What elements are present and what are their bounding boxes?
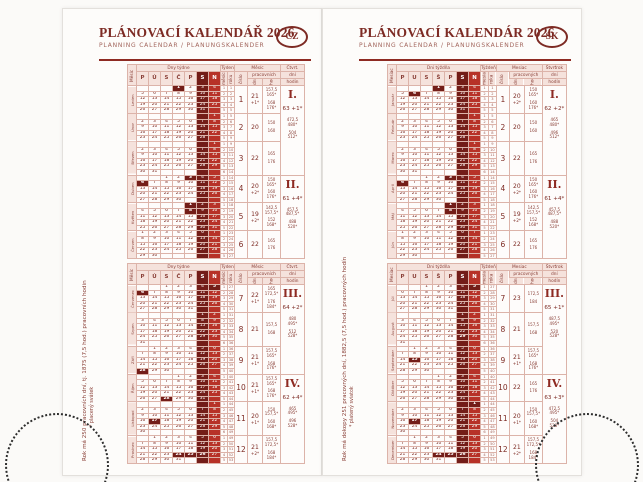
working-days-value: 21 [248,93,262,100]
paid-holidays-value: +2* [510,218,524,223]
diary-spread: PLÁNOVACÍ KALENDÁŘ 2026 PLANNING CALENDA… [0,0,643,482]
page-subtitle: PLANNING CALENDAR / PLANUNGSKALENDER [99,42,265,49]
quarter-days-subheader: dní [281,271,305,278]
working-days-value: 21 [248,444,262,451]
day-cell [433,253,445,259]
day-cell: 30 [149,253,161,259]
month-name: Január [388,86,397,114]
month-name: Prosinec [128,436,137,464]
day-letter: N [209,72,221,86]
working-days-value: 22 [510,155,524,162]
month-col-header: Měsíc [128,65,137,86]
hours-subheader: hodín [524,79,542,86]
working-days-cell: 21+1* [248,374,263,402]
month-name: Leden [128,86,137,114]
working-hours-cell: 142,5157,5*152168* [263,203,281,231]
month-stats-header: Měsíc [235,65,281,72]
month-name: September [388,346,397,374]
working-days-cell: 19+2* [248,203,263,231]
calendar-table: MesiacDni týždňaTýždeňMesiacŠtvrťrokPUSŠ… [387,263,567,464]
working-hours-value: 184 [525,300,542,305]
working-days-cell: 20+1* [509,402,524,436]
working-days-value: 20 [248,413,262,420]
week-of-year: 27 [228,253,235,259]
month-number: 9 [496,346,509,374]
month-stats-header: Mesiac [496,264,542,271]
working-days-cell: 21+1* [248,346,263,374]
month-number: 3 [496,141,509,175]
day-cell: 29 [397,253,409,259]
quarter-hours-value: 528* [281,424,304,429]
working-days-value: 21 [510,444,524,451]
month-col-header: Mesiac [388,264,397,285]
month-name: Květen [128,203,137,231]
working-hours-cell: 150165*160176* [524,86,542,114]
month-number: 5 [496,203,509,231]
day-cell: 29 [409,458,421,464]
working-hours-value: 184* [263,305,280,310]
day-letter: S [421,271,433,285]
working-days-value: 19 [510,211,524,218]
working-hours-value: 168 [525,331,542,336]
working-hours-cell: 150165*160176* [263,175,281,203]
working-hours-cell: 165176 [524,141,542,175]
page-sk: PLÁNOVACÍ KALENDÁR 2026 PLANNING CALENDA… [322,8,582,476]
days-of-week-header: Dni týždňa [397,65,481,72]
quarter-label: I. [543,89,566,101]
working-hours-value: 176* [263,394,280,399]
month-name: Júl [388,285,397,313]
working-days-cell: 20+2* [509,86,524,114]
month-number: 11 [496,402,509,436]
working-days-cell: 21+2* [509,436,524,464]
month-number: 10 [235,374,248,402]
month-number: 1 [235,86,248,114]
day-letter: P [185,271,197,285]
month-number: 4 [235,175,248,203]
calendar-table-jul-dec: MěsícDny týdneTýdenMěsícČtvrt.PÚSČPSNměs… [127,263,305,464]
quarter-label: II. [281,179,304,191]
month-name: August [388,312,397,346]
quarter-hours-value: 520* [281,225,304,230]
working-header: pracovných [509,72,542,79]
day-cell [197,253,209,259]
month-name: November [388,402,397,436]
calendar-table-jan-jun: MesiacDni týždňaTýždeňMesiacŠtvrťrokPUSŠ… [387,64,567,259]
day-letter: P [397,72,409,86]
month-number: 7 [496,285,509,313]
month-number: 9 [235,346,248,374]
day-letter: P [137,271,149,285]
paid-holidays-value: +1* [248,299,262,304]
day-cell: 30 [161,458,173,464]
day-letter: Ú [149,72,161,86]
working-days-cell: 21+1* [509,346,524,374]
day-cell: 31 [173,458,185,464]
working-days-cell: 22 [509,141,524,175]
working-hours-value: 168* [263,223,280,228]
days-of-week-header: Dni týždňa [397,264,481,271]
working-hours-cell: 165176 [263,141,281,175]
working-hours-value: 176* [263,195,280,200]
working-hours-cell: 157,5172,5*168184* [263,436,281,464]
quarter-label: III. [281,288,304,300]
country-badge-cz: CZ [276,26,308,48]
working-hours-value: 168 [263,331,280,336]
day-letter: U [409,72,421,86]
month-name: Srpen [128,312,137,346]
month-name: Říjen [128,374,137,402]
quarter-days-subheader: dní [281,72,305,79]
header-rule [99,59,311,61]
week-header: Týždeň [481,264,497,271]
month-number: 1 [496,86,509,114]
day-letter: S [457,72,469,86]
month-number: 10 [496,374,509,402]
month-name: Október [388,374,397,402]
quarter-days-subheader: dní [542,72,566,79]
working-hours-value: 176 [525,389,542,394]
day-letter: Č [173,72,185,86]
day-cell: 30 [421,458,433,464]
month-name: Únor [128,113,137,141]
working-days-value: 21 [510,326,524,333]
day-letter: P [397,271,409,285]
month-number: 11 [235,402,248,436]
day-letter: S [161,72,173,86]
day-cell [173,253,185,259]
day-cell [209,458,221,464]
day-letter: Š [433,271,445,285]
working-hours-cell: 165176 [524,231,542,259]
working-header: pracovních [248,271,281,278]
working-days-value: 23 [510,295,524,302]
month-number: 6 [235,231,248,259]
quarter-cell: I.62 +2*465480*496512* [542,86,566,176]
week-of-month: 5 [221,458,228,464]
working-days-cell: 20 [509,113,524,141]
quarter-days-subheader: dní [542,271,566,278]
working-hours-value: 176 [525,246,542,251]
working-hours-cell: 150160 [524,113,542,141]
quarter-label: IV. [543,378,566,390]
day-letter: Ú [149,271,161,285]
working-hours-value: 176* [525,106,542,111]
month-name: Marec [388,141,397,175]
month-number: 8 [496,312,509,346]
working-days-cell: 20 [248,113,263,141]
calendar-table: MesiacDni týždňaTýždeňMesiacŠtvrťrokPUSŠ… [387,64,567,259]
day-cell: 31 [433,458,445,464]
quarter-cell: III.64 +2*480495*512528* [281,285,305,375]
week-of-month-header: měsíce [221,271,228,285]
calendar-table: MěsícDny týdneTýdenMěsícČtvrt.PÚSČPSNměs… [127,263,305,464]
working-days-value: 21 [248,354,262,361]
month-number: 2 [235,113,248,141]
working-header: pracovných [509,271,542,278]
country-badge-sk: SK [536,26,568,48]
quarter-label: I. [281,89,304,101]
quarter-hours-value: 512* [281,135,304,140]
day-cell [197,458,209,464]
month-name: December [388,436,397,464]
paid-holiday-footnote: * platený sviatok [349,261,357,461]
working-hours-value: 168* [525,223,542,228]
working-hours-value: 176* [263,106,280,111]
working-days-value: 20 [248,124,262,131]
month-name: Máj [388,203,397,231]
week-of-month-header: měsíce [221,72,228,86]
day-cell [457,253,469,259]
month-name: Červen [128,231,137,259]
page-cz: PLÁNOVACÍ KALENDÁŘ 2026 PLANNING CALENDA… [62,8,322,476]
week-of-month: 5 [481,253,489,259]
quarter-hours-value: 520* [543,225,566,230]
working-hours-value: 157,5* [525,412,542,417]
day-cell [421,253,433,259]
day-cell: 29 [137,253,149,259]
working-days-cell: 21+1* [248,86,263,114]
month-name: Červenec [128,285,137,313]
working-hours-cell: 165172,5*176184* [263,285,281,313]
day-cell: 28 [397,458,409,464]
days-subheader: dní [509,278,524,285]
working-days-value: 21 [248,382,262,389]
quarter-days-value: 62 +4* [281,395,304,401]
working-hours-cell: 157,5168 [263,312,281,346]
days-subheader: dní [248,278,263,285]
quarter-days-value: 62 +2* [543,106,566,112]
quarter-days-value: 61 +4* [543,196,566,202]
month-name: Listopad [128,402,137,436]
week-of-month: 5 [221,253,228,259]
week-of-year: 27 [488,253,496,259]
working-hours-value: 168* [525,425,542,430]
quarter-cell: I.63 +1*472,5480*504512* [281,86,305,176]
month-name: Duben [128,175,137,203]
working-hours-value: 157,5* [263,412,280,417]
paid-holidays-value: +1* [248,389,262,394]
quarter-label: III. [543,288,566,300]
month-name: Február [388,113,397,141]
paid-holidays-value: +1* [248,100,262,105]
working-hours-value: 184* [263,456,280,461]
quarter-hours-value: 512* [543,135,566,140]
working-hours-value: 176* [263,366,280,371]
day-cell [185,458,197,464]
month-number: 5 [235,203,248,231]
day-letter: S [457,271,469,285]
month-number: 3 [235,141,248,175]
quarter-hours-subheader: hodin [281,79,305,86]
quarter-days-value: 61 +4* [281,196,304,202]
day-letter: S [421,72,433,86]
working-days-cell: 20+1* [248,402,263,436]
working-hours-value: 157,5* [525,211,542,216]
page-title: PLÁNOVACÍ KALENDÁR 2026 [359,25,555,41]
week-header: Týden [221,65,235,72]
calendar-table-jul-dec: MesiacDni týždňaTýždeňMesiacŠtvrťrokPUSŠ… [387,263,567,464]
working-days-value: 20 [510,413,524,420]
working-hours-value: 157,5* [263,211,280,216]
day-letter: P [185,72,197,86]
page-subtitle: PLANNING CALENDAR / PLANUNGSKALENDER [359,42,525,49]
week-header: Týden [221,264,235,271]
working-hours-cell: 172,5184 [524,285,542,313]
quarter-header: Štvrťrok [542,65,566,72]
working-days-value: 20 [248,183,262,190]
paid-holidays-value: +1* [248,420,262,425]
working-hours-cell: 157,5165*168176* [263,346,281,374]
quarter-cell: II.61 +4*457,5487,5*488520* [542,175,566,259]
paid-holidays-value: +1* [248,361,262,366]
working-hours-cell: 150157,5*160168* [524,402,542,436]
quarter-label: IV. [281,378,304,390]
page-title: PLÁNOVACÍ KALENDÁŘ 2026 [99,25,295,41]
month-number-header: číslo [496,271,509,285]
working-hours-value: 176* [525,366,542,371]
day-letter: Š [433,72,445,86]
day-cell [469,458,481,464]
quarter-cell: III.65 +1*487,5495*520528* [542,285,566,375]
paid-holidays-value: +1* [510,420,524,425]
working-hours-value: 168* [263,425,280,430]
days-subheader: dní [509,79,524,86]
working-days-value: 19 [248,211,262,218]
quarter-hours-subheader: hodín [542,79,566,86]
month-name: Jún [388,231,397,259]
paid-holidays-value: +2* [510,100,524,105]
working-hours-cell: 150157,5*160168* [263,402,281,436]
quarter-header: Čtvrt. [281,264,305,271]
working-days-value: 20 [510,124,524,131]
day-letter: Č [173,271,185,285]
quarter-label: II. [543,179,566,191]
day-cell [469,253,481,259]
working-hours-cell: 150165*160176* [524,175,542,203]
week-of-month: 5 [481,458,489,464]
quarter-header: Štvrťrok [542,264,566,271]
week-of-year-header: roku [228,271,235,285]
working-days-value: 22 [248,241,262,248]
working-hours-cell: 157,5165*168176* [263,374,281,402]
day-letter: P [445,271,457,285]
paid-holidays-value: +2* [248,190,262,195]
day-letter: U [409,271,421,285]
month-col-header: Měsíc [128,264,137,285]
month-number-header: číslo [235,271,248,285]
month-number: 4 [496,175,509,203]
day-cell [445,458,457,464]
paid-holidays-value: +2* [510,190,524,195]
quarter-days-value: 63 +3* [543,395,566,401]
day-cell: 28 [137,458,149,464]
day-cell [457,458,469,464]
hours-subheader: hodin [263,79,281,86]
working-hours-value: 176 [525,160,542,165]
day-cell [209,253,221,259]
quarter-hours-subheader: hodín [542,278,566,285]
working-hours-cell: 150160 [263,113,281,141]
paid-holidays-value: +2* [510,451,524,456]
working-days-value: 22 [510,241,524,248]
year-summary-text: Rok má dokopy 251 pracovných dní, 1882,5… [341,261,349,461]
working-days-cell: 22 [509,231,524,259]
paid-holidays-value: +2* [248,218,262,223]
working-days-value: 20 [510,93,524,100]
quarter-days-value: 63 +1* [281,106,304,112]
days-subheader: dní [248,79,263,86]
month-stats-header: Mesiac [496,65,542,72]
working-days-cell: 20+2* [248,175,263,203]
quarter-days-value: 65 +1* [543,305,566,311]
working-days-value: 21 [510,354,524,361]
month-number: 6 [496,231,509,259]
quarter-cell: IV.62 +4*465495*496528* [281,374,305,464]
month-number: 7 [235,285,248,313]
working-days-value: 22 [248,155,262,162]
working-hours-value: 172,5* [263,292,280,297]
working-hours-cell: 157,5165*168176* [263,86,281,114]
calendar-table: MěsícDny týdneTýdenMěsícČtvrt.PÚSČPSNměs… [127,64,305,259]
day-letter: N [469,271,481,285]
day-letter: S [197,72,209,86]
day-letter: P [137,72,149,86]
month-number: 12 [235,436,248,464]
quarter-hours-value: 528* [543,334,566,339]
days-of-week-header: Dny týdne [137,65,221,72]
working-days-cell: 21+2* [248,436,263,464]
working-days-value: 22 [248,292,262,299]
working-hours-value: 176* [525,195,542,200]
working-days-cell: 21 [248,312,263,346]
month-name: Září [128,346,137,374]
month-number: 8 [235,312,248,346]
working-days-cell: 23 [509,285,524,313]
quarter-hours-value: 528* [281,334,304,339]
quarter-cell: II.61 +4*457,5487,5*488520* [281,175,305,259]
day-letter: P [445,72,457,86]
quarter-header: Čtvrt. [281,65,305,72]
working-hours-cell: 165176 [524,374,542,402]
header-rule [359,59,571,61]
working-days-value: 21 [248,326,262,333]
working-hours-value: 160 [263,129,280,134]
working-days-cell: 22 [248,141,263,175]
day-cell: 29 [149,458,161,464]
quarter-hours-subheader: hodin [281,278,305,285]
working-hours-cell: 157,5168 [524,312,542,346]
day-cell [185,253,197,259]
day-letter: N [469,72,481,86]
month-number-header: číslo [235,72,248,86]
day-cell: 30 [409,253,421,259]
working-hours-cell: 165176 [263,231,281,259]
week-of-year: 53 [488,458,496,464]
working-hours-value: 160 [525,129,542,134]
paid-holidays-value: +1* [510,361,524,366]
day-letter: S [197,271,209,285]
month-stats-header: Měsíc [235,264,281,271]
month-number: 2 [496,113,509,141]
day-letter: N [209,271,221,285]
working-days-cell: 21 [509,312,524,346]
month-name: Apríl [388,175,397,203]
quarter-days-value: 64 +2* [281,305,304,311]
working-days-cell: 20+2* [509,175,524,203]
week-of-year-header: roku [228,72,235,86]
working-days-cell: 22 [248,231,263,259]
